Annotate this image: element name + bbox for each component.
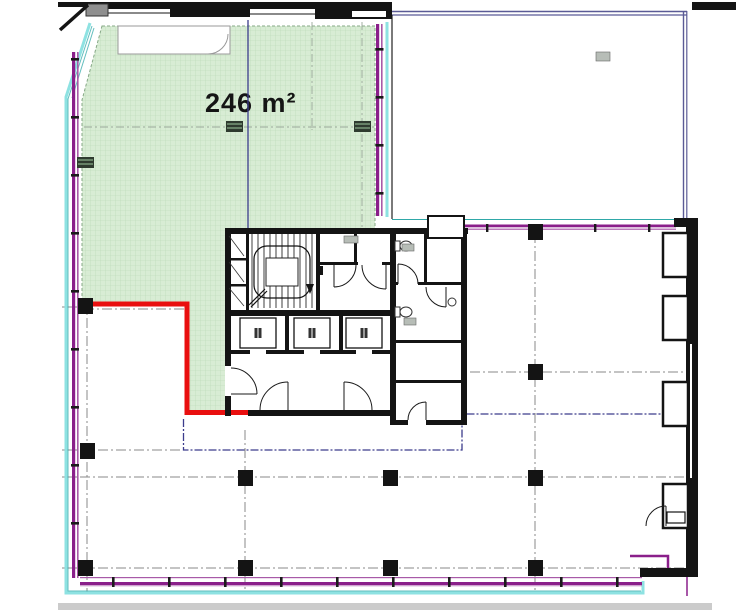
window-wall-west	[71, 52, 79, 578]
neighbour-wall-nw	[58, 2, 88, 7]
window-wall-atrium	[462, 224, 676, 232]
column	[383, 470, 398, 486]
facade-window	[663, 382, 688, 426]
column	[80, 443, 95, 459]
bottom-strip	[58, 603, 712, 610]
column	[78, 298, 93, 314]
shaft-block	[86, 4, 108, 16]
facade-window	[663, 233, 688, 277]
floor-plan-page: 246 m²	[0, 0, 736, 611]
adjacent-unit	[392, 11, 687, 219]
area-label: 246 m²	[205, 88, 297, 118]
column	[528, 470, 543, 486]
column	[383, 560, 398, 576]
toilet-fixture	[395, 307, 412, 317]
facade-window	[663, 296, 688, 340]
column	[238, 470, 253, 486]
column	[528, 224, 543, 240]
room-tag	[402, 244, 414, 251]
east-door	[667, 512, 685, 523]
core-entry-recess	[428, 216, 464, 238]
column	[528, 364, 543, 380]
column-marker	[354, 121, 371, 132]
column-marker	[226, 121, 243, 132]
window-wall-unit-east	[376, 24, 384, 216]
column-marker	[77, 157, 94, 168]
column	[528, 560, 543, 576]
column	[238, 560, 253, 576]
floor-plan-canvas: 246 m²	[0, 0, 736, 611]
room-tag	[344, 236, 358, 243]
entrance-recess	[118, 26, 230, 54]
room-tag	[596, 52, 610, 61]
window-wall-south	[80, 577, 642, 587]
sink-fixture	[448, 298, 456, 306]
adjacent-unit-region[interactable]	[392, 15, 684, 219]
column	[78, 560, 93, 576]
stair-landing	[266, 258, 298, 286]
room-tag	[404, 318, 416, 325]
neighbour-wall-ne	[692, 2, 736, 10]
